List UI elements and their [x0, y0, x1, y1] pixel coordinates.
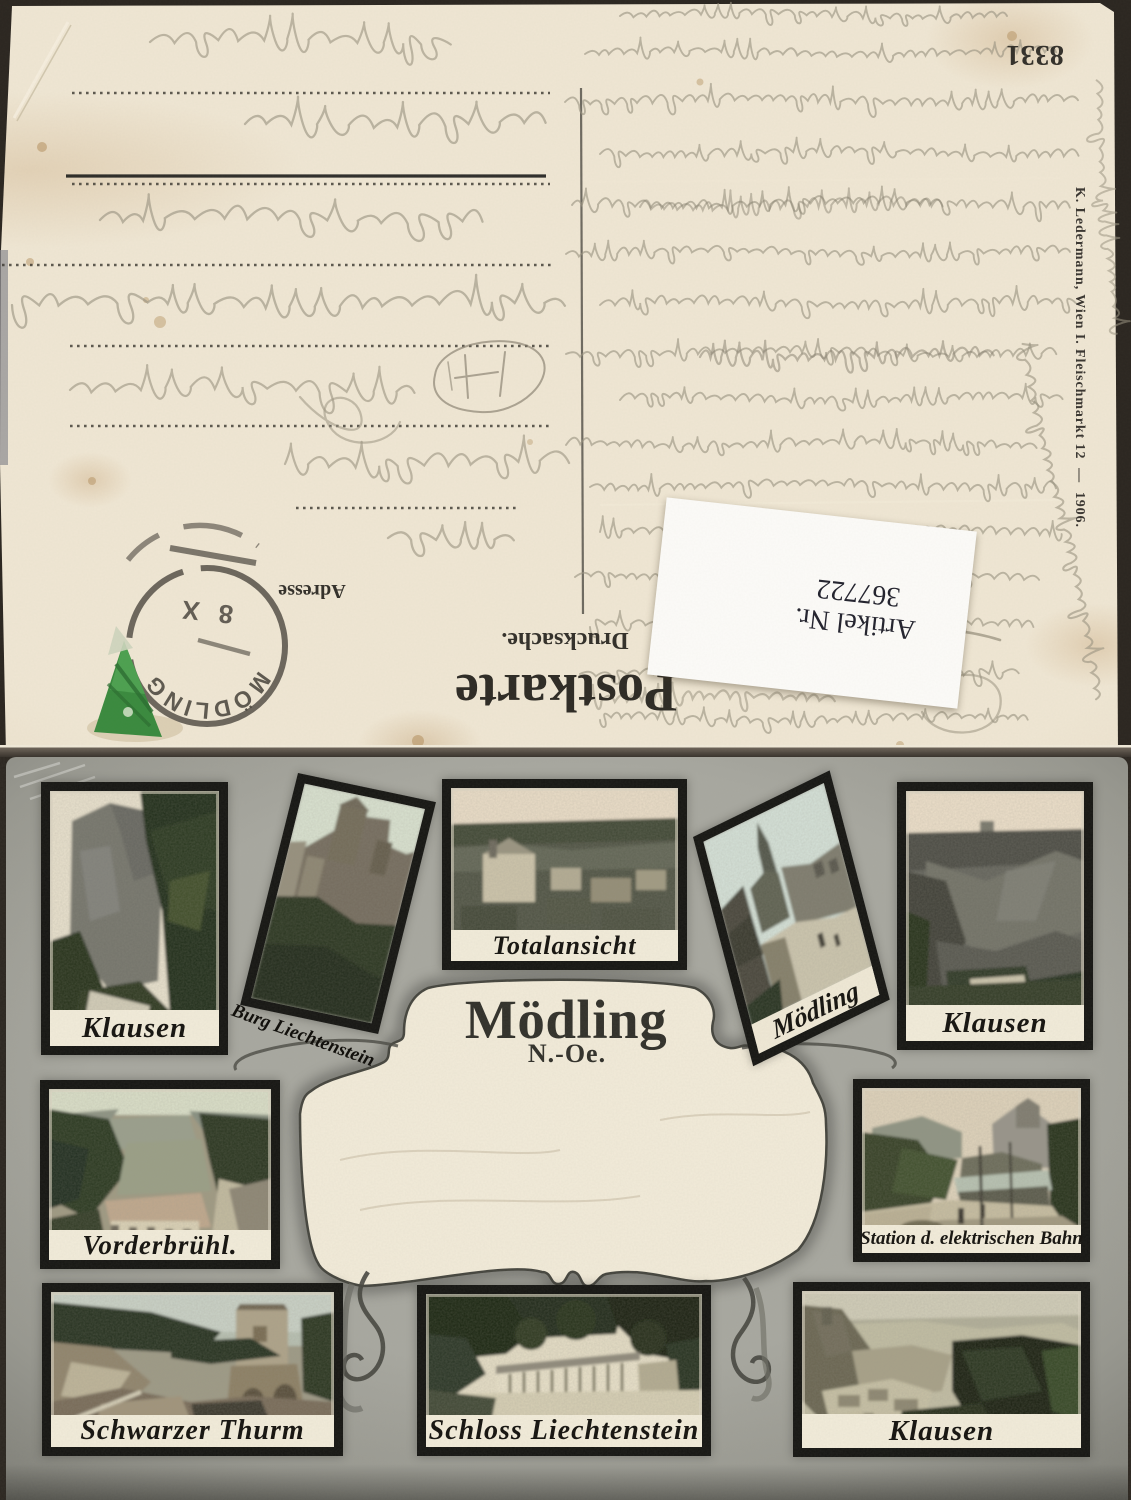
svg-text:8 X: 8 X: [175, 594, 235, 630]
svg-text:MÖDLING: MÖDLING: [139, 667, 276, 724]
svg-text:N.-Oe.: N.-Oe.: [528, 1039, 606, 1068]
